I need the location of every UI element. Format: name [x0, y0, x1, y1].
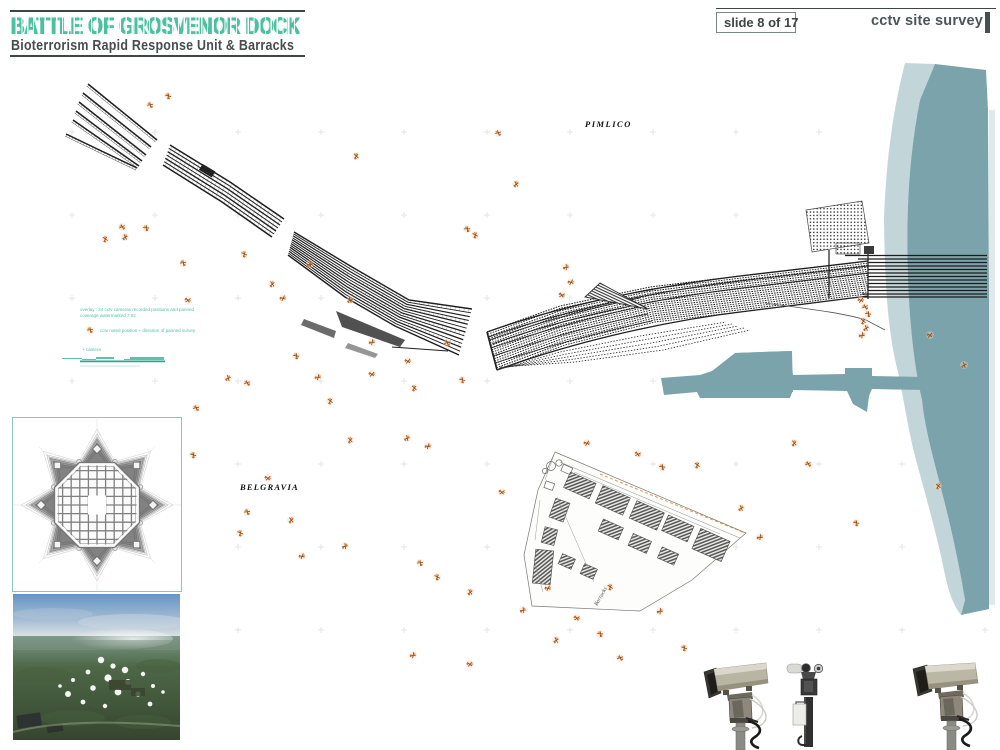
svg-text:overlay . 24 cctv cameras reco: overlay . 24 cctv cameras recorded posit…	[80, 307, 195, 312]
svg-text:coverage watermarked 7.02: coverage watermarked 7.02	[80, 313, 136, 318]
svg-text:cctv noted position + directio: cctv noted position + direction of panne…	[100, 328, 196, 333]
svg-text:BELGRAVIA: BELGRAVIA	[239, 482, 299, 492]
svg-text:PIMLICO: PIMLICO	[585, 119, 632, 129]
svg-text:+ camera: + camera	[82, 347, 101, 352]
